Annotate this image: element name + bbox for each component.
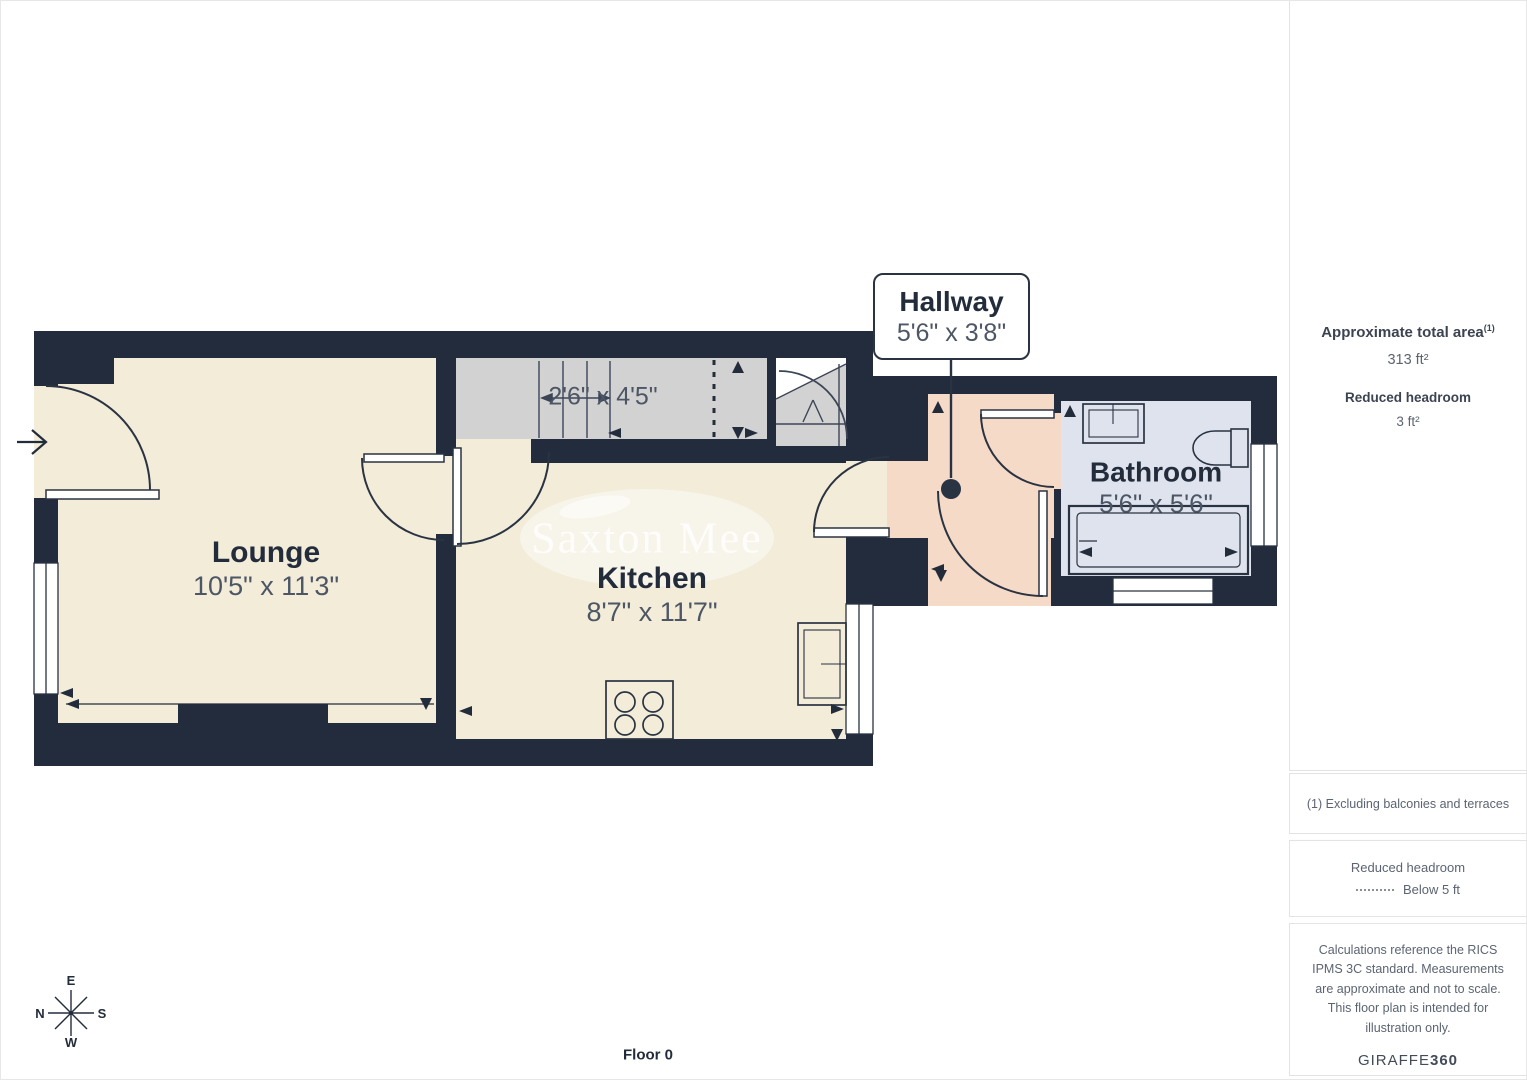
chimney-breast [178,704,328,723]
window-kitchen-right [846,604,873,734]
kitchen-hall-opening [846,461,887,536]
total-area-value: 313 ft² [1290,352,1526,368]
hallway-floor-mid [887,461,1054,538]
window-lounge-left [34,563,58,694]
bathroom-label: Bathroom 5'6" x 5'6" [1090,456,1222,521]
compass-west: W [65,1035,78,1050]
kitchen-label: Kitchen 8'7" x 11'7" [586,561,717,629]
footnote-panel: (1) Excluding balconies and terraces [1289,773,1527,834]
hallway-name: Hallway [899,285,1003,318]
hallway-callout: Hallway 5'6" x 3'8" [873,273,1030,360]
compass-rose: E S W N [35,973,106,1050]
compass-north: N [35,1006,44,1021]
floorplan-page: E S W N Saxton Mee Lounge 10'5" x 11'3" … [0,0,1527,1080]
bathroom-dimensions: 5'6" x 5'6" [1090,489,1222,521]
kitchen-name: Kitchen [586,561,717,596]
reduced-headroom-value: 3 ft² [1290,414,1526,429]
footnote-text: (1) Excluding balconies and terraces [1307,797,1509,811]
info-sidebar: Approximate total area(1) 313 ft² Reduce… [1289,1,1527,1080]
total-area-label: Approximate total area(1) [1290,323,1526,341]
lounge-label: Lounge 10'5" x 11'3" [193,535,339,603]
legend-item-label: Below 5 ft [1403,882,1460,897]
disclaimer-text: Calculations reference the RICS IPMS 3C … [1312,941,1504,1038]
kitchen-dimensions: 8'7" x 11'7" [586,596,717,629]
lounge-name: Lounge [193,535,339,570]
hob-icon [606,681,673,739]
lounge-dimensions: 10'5" x 11'3" [193,570,339,603]
wall-pier [54,356,114,384]
hallway-dimensions: 5'6" x 3'8" [897,318,1006,349]
legend-title: Reduced headroom [1351,860,1465,875]
legend-panel: Reduced headroom Below 5 ft [1289,840,1527,917]
disclaimer-panel: Calculations reference the RICS IPMS 3C … [1289,923,1527,1076]
total-area-panel: Approximate total area(1) 313 ft² Reduce… [1289,0,1527,771]
window-bathroom-right [1251,444,1277,546]
reduced-headroom-label: Reduced headroom [1290,390,1526,405]
brand-logo: GIRAFFE360 [1312,1052,1504,1069]
stairs-dimensions: 2'6" x 4'5" [548,383,657,412]
compass-east: E [67,973,76,988]
footnote-marker: (1) [1484,323,1495,333]
bathroom-name: Bathroom [1090,456,1222,489]
compass-south: S [98,1006,107,1021]
window-bathroom-bottom [1113,578,1213,604]
watermark: Saxton Mee [531,513,762,564]
floor-label: Floor 0 [623,1047,673,1064]
dotted-line-icon [1356,889,1394,891]
